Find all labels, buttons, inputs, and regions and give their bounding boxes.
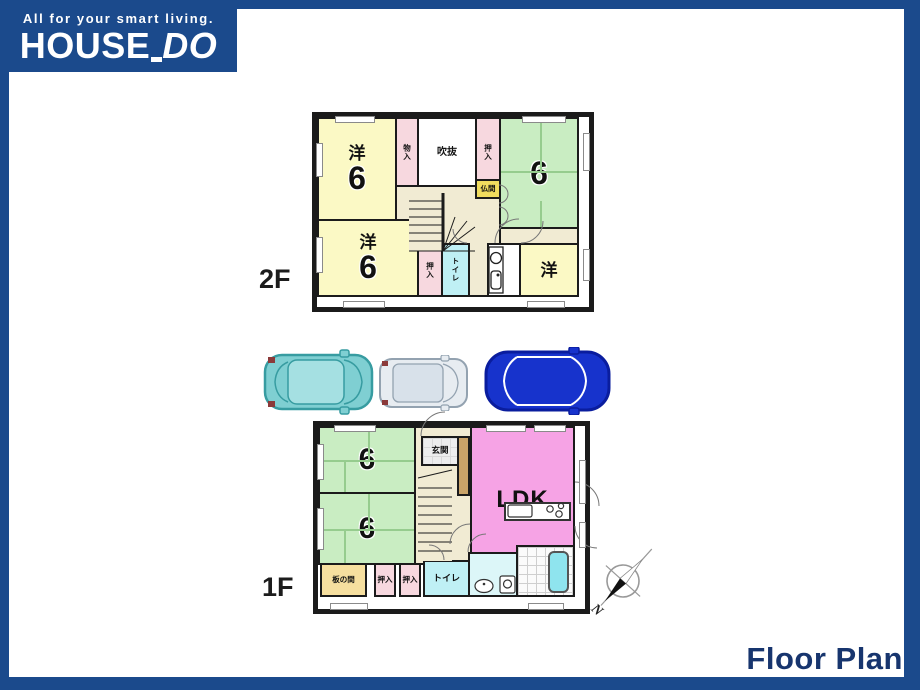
logo-dash [151,57,162,62]
room-2f-tatami: 6 [499,117,579,229]
window [534,425,566,432]
toilet-1f: トイレ [423,560,470,597]
room-1f-tatami-bottom: 6 [318,492,416,565]
tatami-line [320,529,414,531]
room-1f-tatami-top: 6 [318,426,416,494]
page-title: Floor Plan [746,641,903,677]
window [522,116,566,123]
window [486,425,526,432]
blue-sedan-car [483,347,612,415]
kitchen-counter [504,502,571,521]
closet-label: 押入 [403,576,418,584]
tatami-line [320,460,414,462]
window [335,116,375,123]
floor-2-label: 2F [259,264,291,295]
room-2f-west-top: 洋 6 [317,117,397,221]
tatami-line [540,119,542,171]
void-fukinuke: 吹抜 [417,117,477,187]
closet-label: 押入 [483,144,494,161]
toilet-label: トイレ [433,574,460,584]
logo-tagline: All for your smart living. [23,11,214,26]
room-itanoma: 板の間 [320,563,367,597]
toilet-2f: トイレ [441,243,470,297]
tatami-line [344,460,346,494]
tatami-line [368,428,370,460]
logo-brand-do: DO [162,28,217,64]
window [528,603,564,610]
tatami-line [501,171,577,173]
floor-1-label: 1F [262,572,294,603]
room-2f-west-bottom: 洋 6 [317,219,419,297]
bathtub [548,551,569,593]
frame-left [0,0,9,690]
itanoma-label: 板の間 [332,576,355,584]
washroom-1f [468,552,518,597]
floor-2-plan: 洋 6 物入 吹抜 押入 6 仏間 洋 6 押入 トイレ [312,112,594,312]
housedo-logo: All for your smart living. HOUSE DO [0,0,237,72]
closet-monoire: 物入 [395,117,419,187]
frame-right [904,0,920,690]
entrance-genkan: 玄関 [421,436,459,466]
floor-plan-page: All for your smart living. HOUSE DO Floo… [0,0,920,690]
closet-label: 物入 [402,144,413,161]
room-2f-west-right: 洋 [519,243,579,297]
tatami-line [540,201,542,229]
window [527,301,565,308]
teal-hatchback-car [262,349,375,415]
window [579,460,586,504]
window [334,425,376,432]
logo-brand-house: HOUSE [20,28,151,64]
compass-north-indicator: N [578,536,668,626]
tatami-line [368,494,370,529]
washroom-2f [487,243,521,297]
closet-oshiire-a: 押入 [374,563,396,597]
entrance-label: 玄関 [430,446,449,455]
closet-label: 押入 [378,576,393,584]
closet-label: 押入 [425,262,436,279]
window [317,508,324,550]
window [330,603,368,610]
bathroom [516,545,575,597]
frame-bottom [0,677,920,690]
room-kind-label: 洋 [360,234,377,251]
window [316,237,323,273]
window [579,522,586,548]
logo-brand: HOUSE DO [20,28,218,64]
window [343,301,385,308]
window [317,444,324,480]
window [583,249,590,281]
window [316,143,323,177]
closet-oshiire-b: 押入 [399,563,421,597]
butsuma: 仏間 [475,179,501,199]
closet-oshiire-top: 押入 [475,117,501,187]
room-size-label: 6 [348,162,366,194]
closet-oshiire-bottom: 押入 [417,243,443,297]
room-size-label: 6 [359,251,377,283]
room-kind-label: 洋 [541,262,558,279]
toilet-label: トイレ [450,257,461,283]
room-ldk: LDK [470,426,575,559]
room-kind-label: 洋 [349,145,366,162]
room-size-label: 6 [530,157,548,189]
floor-1-plan: 6 6 玄関 LDK 板の間 押入 押入 トイレ [313,421,590,614]
void-label: 吹抜 [437,147,457,158]
butsuma-label: 仏間 [481,185,496,193]
gray-compact-car [377,355,470,411]
window [583,133,590,171]
shoe-cabinet [457,436,470,496]
tatami-line [344,529,346,565]
